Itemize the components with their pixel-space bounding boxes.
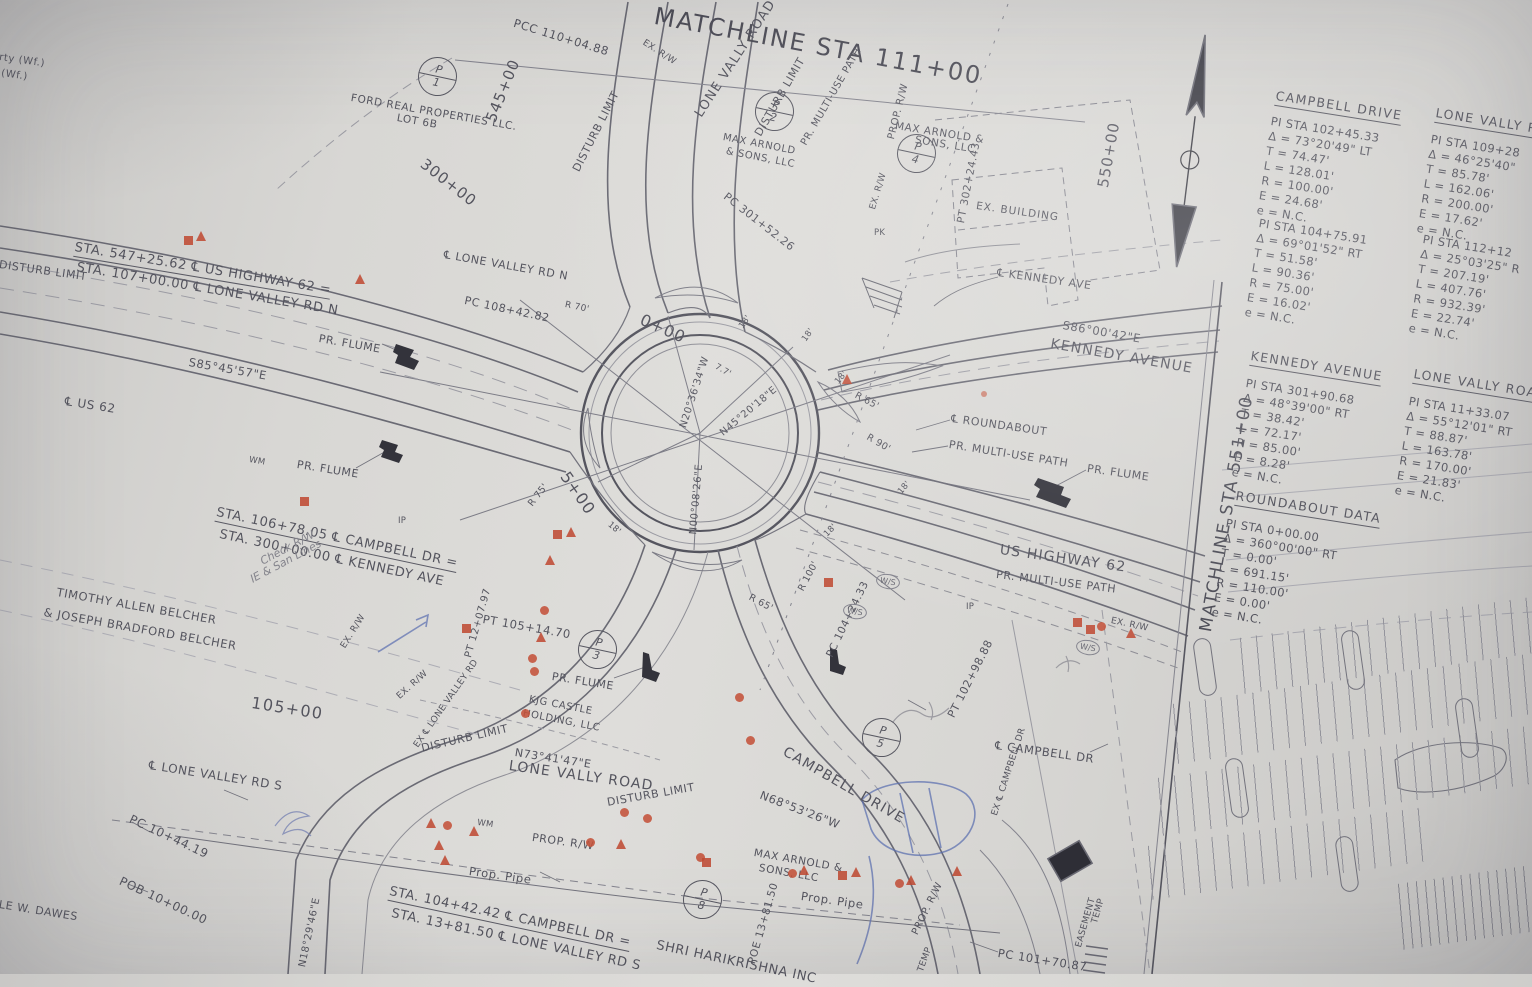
survey-marker (620, 808, 629, 817)
survey-marker (952, 866, 962, 876)
survey-marker (300, 497, 309, 506)
survey-marker (540, 606, 549, 615)
survey-marker (184, 236, 193, 245)
survey-marker (799, 865, 809, 875)
survey-marker (196, 231, 206, 241)
survey-marker (746, 736, 755, 745)
curve-table-campbell-2: PI STA 104+75.91 Δ = 69°01'52" RT T = 51… (1244, 216, 1369, 337)
curve-table-lvr-lower: PI STA 11+33.07 Δ = 55°12'01" RT T = 88.… (1394, 394, 1516, 514)
survey-marker (735, 693, 744, 702)
survey-marker (851, 867, 861, 877)
survey-marker (616, 839, 626, 849)
survey-marker (521, 709, 530, 718)
curve-table-lvr-upper-2: PI STA 112+12 Δ = 25°03'25" R T = 207.19… (1408, 232, 1524, 351)
survey-marker (838, 871, 847, 880)
ip-mark: IP (398, 516, 406, 526)
survey-marker (443, 821, 452, 830)
curve-table-lvr-upper-1: PI STA 109+28 Δ = 46°25'40" T = 85.78' L… (1416, 132, 1522, 250)
survey-marker (643, 814, 652, 823)
pk-mark: PK (874, 228, 885, 238)
survey-marker (1097, 622, 1106, 631)
survey-marker (553, 530, 562, 539)
survey-marker (824, 578, 833, 587)
curve-table-kennedy: PI STA 301+90.68 Δ = 48°39'00" RT T = 38… (1231, 376, 1356, 497)
p-number: 2 (754, 107, 793, 127)
survey-marker (440, 855, 450, 865)
survey-marker (469, 826, 479, 836)
survey-marker (566, 527, 576, 537)
p-number: 5 (861, 733, 900, 753)
survey-marker (586, 838, 595, 847)
survey-marker (788, 869, 797, 878)
survey-marker (702, 858, 711, 867)
civil-plan-sheet: rty (Wf.) (Wf.) FORD REAL PROPERTIES LLC… (0, 0, 1532, 974)
survey-marker (1086, 625, 1095, 634)
curve-table-roundabout: PI STA 0+00.00 Δ = 360°00'00" RT T = 0.0… (1211, 516, 1341, 638)
survey-marker (536, 632, 546, 642)
survey-marker (528, 654, 537, 663)
survey-marker (981, 391, 987, 397)
p-number: 4 (896, 149, 935, 169)
survey-marker (842, 374, 852, 384)
p-number: 3 (577, 645, 616, 665)
survey-marker (530, 667, 539, 676)
survey-marker (1073, 618, 1082, 627)
p-number: 8 (682, 895, 721, 915)
survey-marker (906, 875, 916, 885)
ip-mark: IP (966, 602, 974, 612)
wm-mark: WM (477, 818, 495, 830)
survey-marker (434, 840, 444, 850)
p-number: 1 (417, 72, 456, 92)
survey-marker (545, 555, 555, 565)
survey-marker (426, 818, 436, 828)
curve-table-campbell-1: PI STA 102+45.33 Δ = 73°20'49" LT T = 74… (1256, 114, 1381, 235)
survey-marker (895, 879, 904, 888)
survey-marker (462, 624, 471, 633)
survey-marker (355, 274, 365, 284)
survey-marker (1126, 628, 1136, 638)
